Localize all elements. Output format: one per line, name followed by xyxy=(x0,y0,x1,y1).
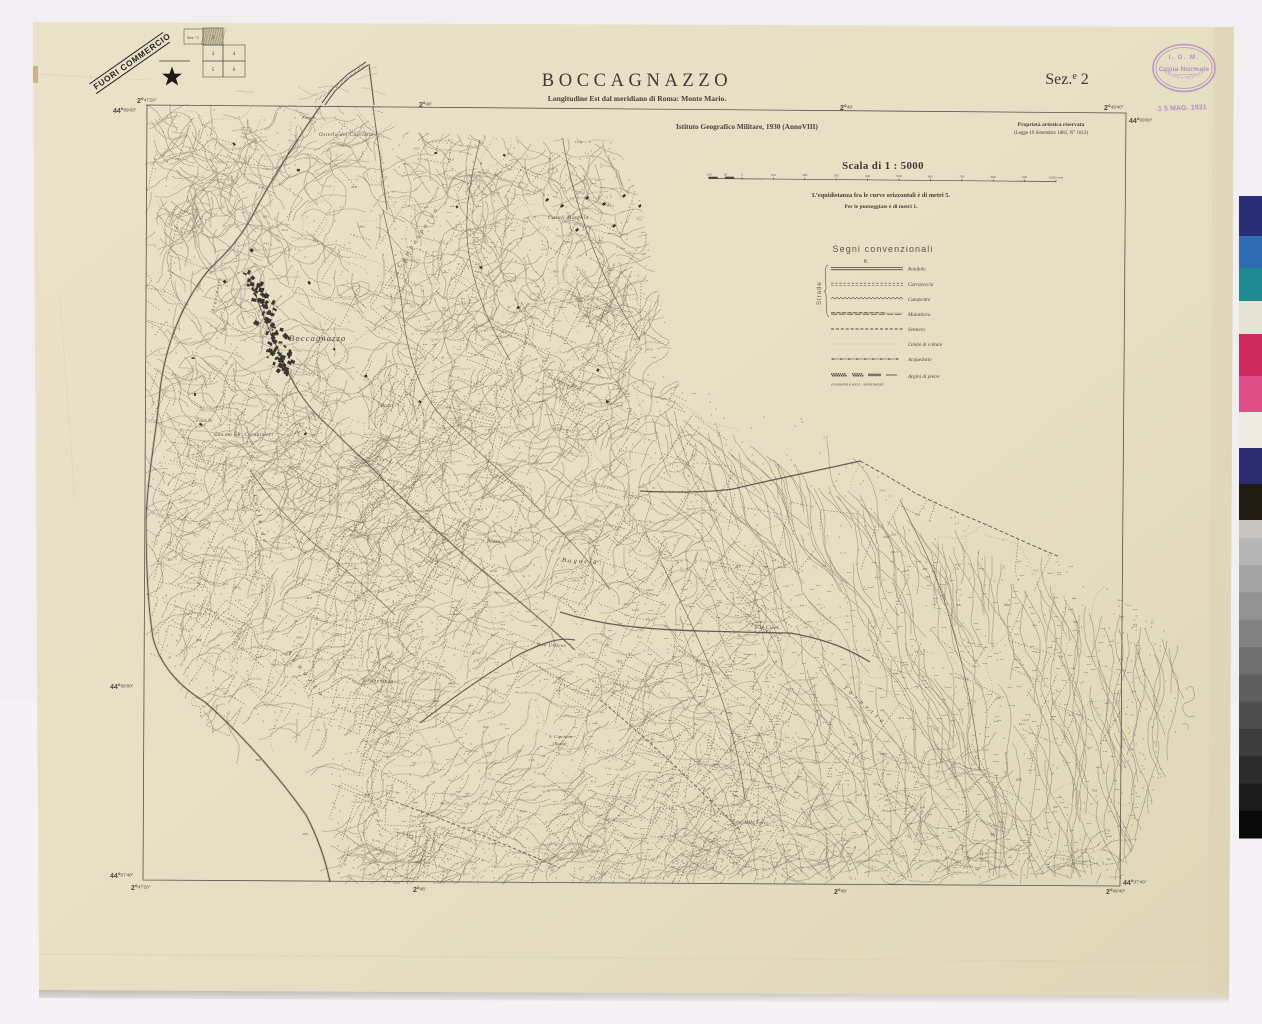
svg-text:Casali Marchio: Casali Marchio xyxy=(548,215,589,221)
svg-text:106.7: 106.7 xyxy=(891,533,899,537)
svg-text:(Legge 19 Settembre 1882, N° 1: (Legge 19 Settembre 1882, N° 1012) xyxy=(1014,131,1089,136)
svg-text:61.2: 61.2 xyxy=(1019,722,1025,726)
svg-text:46.1: 46.1 xyxy=(856,793,862,797)
svg-text:100: 100 xyxy=(771,173,776,177)
svg-text:108.4: 108.4 xyxy=(296,636,304,640)
svg-text:64.8: 64.8 xyxy=(542,358,548,362)
svg-text:58.2: 58.2 xyxy=(624,602,630,606)
svg-text:42.6: 42.6 xyxy=(638,485,644,489)
svg-text:104.1: 104.1 xyxy=(420,671,428,675)
svg-text:44.4: 44.4 xyxy=(263,241,269,245)
svg-text:38.8: 38.8 xyxy=(255,758,261,762)
svg-text:Longitudine Est dal meridiano: Longitudine Est dal meridiano di Roma: M… xyxy=(548,94,727,103)
svg-text:79.1: 79.1 xyxy=(915,513,921,517)
svg-text:65.9: 65.9 xyxy=(258,186,264,190)
svg-text:109.3: 109.3 xyxy=(551,270,559,274)
svg-text:50: 50 xyxy=(724,173,728,177)
svg-text:con muretti a secco senza mu: con muretti a secco senza muretti xyxy=(831,383,884,387)
svg-text:600: 600 xyxy=(928,174,933,178)
svg-text:Proprietà artistica riservata: Proprietà artistica riservata xyxy=(1018,122,1085,128)
svg-text:I. G. M.: I. G. M. xyxy=(1169,54,1200,61)
svg-text:86.9: 86.9 xyxy=(449,681,455,685)
svg-text:41.0: 41.0 xyxy=(590,780,596,784)
svg-text:52.5: 52.5 xyxy=(548,866,554,870)
svg-text:Osteria del Cacciatore: Osteria del Cacciatore xyxy=(319,132,378,138)
svg-text:Pozzo: Pozzo xyxy=(486,540,501,545)
svg-text:Cas.ma RR. Carabinieri: Cas.ma RR. Carabinieri xyxy=(214,432,273,438)
svg-text:40.7: 40.7 xyxy=(167,558,173,562)
svg-text:43.3: 43.3 xyxy=(898,716,904,720)
svg-text:700: 700 xyxy=(959,175,964,179)
svg-text:65.6: 65.6 xyxy=(963,677,969,681)
svg-text:81.1: 81.1 xyxy=(565,498,571,502)
svg-text:86.2: 86.2 xyxy=(441,802,447,806)
svg-text:115.0: 115.0 xyxy=(233,585,241,589)
svg-text:97.8: 97.8 xyxy=(756,620,762,624)
svg-text:94.4: 94.4 xyxy=(1004,602,1010,606)
svg-text:Sez.e 2: Sez.e 2 xyxy=(1045,71,1089,88)
svg-text:99.4: 99.4 xyxy=(980,857,986,861)
svg-text:2: 2 xyxy=(212,35,215,41)
svg-text:87.9: 87.9 xyxy=(647,348,653,352)
svg-text:71.3: 71.3 xyxy=(297,643,303,647)
svg-text:200: 200 xyxy=(802,173,807,177)
svg-text:Sez.i 1: Sez.i 1 xyxy=(187,35,200,40)
svg-text:63.6: 63.6 xyxy=(883,535,889,539)
svg-text:78.7: 78.7 xyxy=(389,588,395,592)
svg-text:47.2: 47.2 xyxy=(351,564,357,568)
svg-text:Font.le: Font.le xyxy=(301,115,317,120)
svg-text:46.7: 46.7 xyxy=(433,699,439,703)
svg-text:57.4: 57.4 xyxy=(879,489,885,493)
svg-text:55.4: 55.4 xyxy=(382,755,388,759)
svg-text:106.5: 106.5 xyxy=(890,550,898,554)
svg-text:800: 800 xyxy=(991,175,996,179)
svg-text:36.9: 36.9 xyxy=(282,228,288,232)
svg-text:(Rov.a): (Rov.a) xyxy=(553,741,567,746)
svg-text:52.5: 52.5 xyxy=(983,748,989,752)
svg-text:74.5: 74.5 xyxy=(312,240,318,244)
svg-text:38.5: 38.5 xyxy=(852,742,858,746)
svg-text:5: 5 xyxy=(212,67,215,73)
svg-text:F.te Cicer: F.te Cicer xyxy=(754,625,780,631)
svg-text:78.9: 78.9 xyxy=(520,809,526,813)
svg-text:Rotabile: Rotabile xyxy=(907,267,926,273)
svg-text:4: 4 xyxy=(233,51,236,57)
svg-text:500: 500 xyxy=(896,174,901,178)
svg-text:59.2: 59.2 xyxy=(474,650,480,654)
svg-text:64.6: 64.6 xyxy=(417,517,423,521)
svg-text:42.3: 42.3 xyxy=(465,749,471,753)
svg-text:L’equidistanza fra le curve or: L’equidistanza fra le curve orizzontali … xyxy=(812,192,950,199)
svg-text:35.9: 35.9 xyxy=(660,397,666,401)
svg-text:108.1: 108.1 xyxy=(413,860,421,864)
svg-text:79.1: 79.1 xyxy=(442,308,448,312)
svg-text:107.5: 107.5 xyxy=(334,632,342,636)
svg-text:82.5: 82.5 xyxy=(346,580,352,584)
svg-text:42.5: 42.5 xyxy=(414,146,420,150)
svg-text:Argini di pietre: Argini di pietre xyxy=(907,374,940,380)
svg-text:47.0: 47.0 xyxy=(607,748,613,752)
svg-text:46.2: 46.2 xyxy=(409,854,415,858)
svg-text:97.0: 97.0 xyxy=(500,723,506,727)
svg-text:39.3: 39.3 xyxy=(494,591,500,595)
svg-text:58.6: 58.6 xyxy=(483,725,489,729)
svg-text:78.3: 78.3 xyxy=(364,793,370,797)
svg-text:K.: K. xyxy=(864,259,869,265)
svg-text:47.7: 47.7 xyxy=(998,695,1004,699)
svg-text:110.1: 110.1 xyxy=(650,858,658,862)
svg-text:Limite di colture: Limite di colture xyxy=(907,342,943,348)
svg-text:BOCCAGNAZZO: BOCCAGNAZZO xyxy=(542,71,732,91)
svg-text:Scala di 1 : 5000: Scala di 1 : 5000 xyxy=(842,160,924,172)
svg-text:79.8: 79.8 xyxy=(1091,789,1097,793)
svg-text:112.5: 112.5 xyxy=(575,140,583,144)
svg-text:46.9: 46.9 xyxy=(571,384,577,388)
svg-text:46.8: 46.8 xyxy=(302,832,308,836)
svg-text:56.9: 56.9 xyxy=(477,508,483,512)
svg-text:109.2: 109.2 xyxy=(262,215,270,219)
svg-text:3: 3 xyxy=(212,51,215,57)
svg-text:6: 6 xyxy=(233,67,236,73)
svg-text:63.8: 63.8 xyxy=(1016,778,1022,782)
svg-text:Istituto Geografico Militare: Istituto Geografico Militare, 1930 (Anno… xyxy=(676,122,819,131)
svg-text:49.2: 49.2 xyxy=(586,834,592,838)
svg-text:Sentiero: Sentiero xyxy=(908,327,926,333)
svg-text:100: 100 xyxy=(706,172,711,176)
svg-text:.1 5 MAG. 1931: .1 5 MAG. 1931 xyxy=(1156,102,1207,113)
svg-text:98.7: 98.7 xyxy=(196,638,202,642)
svg-text:74.9: 74.9 xyxy=(375,818,381,822)
svg-text:Acquedotto: Acquedotto xyxy=(907,357,932,363)
svg-text:58.8: 58.8 xyxy=(713,763,719,767)
svg-text:51.6: 51.6 xyxy=(529,758,535,762)
svg-text:Segni convenzionali: Segni convenzionali xyxy=(833,244,934,254)
svg-text:Carrareccia: Carrareccia xyxy=(908,282,934,288)
svg-text:58.1: 58.1 xyxy=(882,808,888,812)
svg-text:106.1: 106.1 xyxy=(358,225,366,229)
svg-text:48.0: 48.0 xyxy=(351,185,357,189)
svg-text:Strade: Strade xyxy=(817,281,823,305)
svg-text:114.9: 114.9 xyxy=(632,608,640,612)
svg-text:Per le punteggiate è di metri: Per le punteggiate è di metri 1. xyxy=(844,204,918,210)
svg-text:P.so Ustivaz: P.so Ustivaz xyxy=(536,643,566,649)
svg-text:105.0: 105.0 xyxy=(490,569,498,573)
svg-text:48.1: 48.1 xyxy=(367,573,373,577)
svg-text:75.3: 75.3 xyxy=(531,454,537,458)
svg-text:43.6: 43.6 xyxy=(788,687,794,691)
svg-text:52.7: 52.7 xyxy=(522,220,528,224)
svg-text:108.2: 108.2 xyxy=(646,588,654,592)
svg-text:55.1: 55.1 xyxy=(854,713,860,717)
svg-text:100.6: 100.6 xyxy=(571,579,579,583)
svg-text:42.5: 42.5 xyxy=(735,565,741,569)
svg-text:300: 300 xyxy=(834,174,839,178)
svg-text:72.3: 72.3 xyxy=(507,152,513,156)
svg-text:41.9: 41.9 xyxy=(448,158,454,162)
svg-text:43.5: 43.5 xyxy=(407,623,413,627)
svg-text:Mulattiera: Mulattiera xyxy=(907,312,931,318)
svg-text:43.7: 43.7 xyxy=(691,454,697,458)
svg-text:47.6: 47.6 xyxy=(294,431,300,435)
svg-text:95.5: 95.5 xyxy=(381,621,387,625)
svg-text:Font.le: Font.le xyxy=(195,419,213,424)
svg-text:54.5: 54.5 xyxy=(410,304,416,308)
svg-text:78.7: 78.7 xyxy=(222,328,228,332)
svg-text:111.6: 111.6 xyxy=(578,653,585,657)
svg-text:53.2: 53.2 xyxy=(403,162,409,166)
svg-text:90.1: 90.1 xyxy=(873,782,879,786)
svg-text:48.4: 48.4 xyxy=(621,322,627,326)
svg-text:100.2: 100.2 xyxy=(577,190,585,194)
svg-text:101.6: 101.6 xyxy=(688,696,696,700)
svg-text:Boccagnazzo: Boccagnazzo xyxy=(289,333,346,343)
svg-text:90.6: 90.6 xyxy=(885,798,891,802)
svg-text:1000 metri: 1000 metri xyxy=(1049,175,1064,179)
svg-text:59.6: 59.6 xyxy=(624,392,630,396)
svg-text:Strabenissa: Strabenissa xyxy=(362,678,394,685)
svg-text:400: 400 xyxy=(865,174,870,178)
svg-text:111.7: 111.7 xyxy=(850,675,857,679)
svg-text:88.9: 88.9 xyxy=(562,812,568,816)
svg-text:57.7: 57.7 xyxy=(538,772,544,776)
svg-text:107.9: 107.9 xyxy=(621,233,629,237)
svg-text:Campestre: Campestre xyxy=(908,297,931,303)
svg-text:45.4: 45.4 xyxy=(222,582,228,586)
svg-text:36.0: 36.0 xyxy=(951,762,957,766)
svg-text:39.9: 39.9 xyxy=(616,659,622,663)
svg-text:S. Cipriano: S. Cipriano xyxy=(549,734,573,739)
svg-text:900: 900 xyxy=(1022,175,1027,179)
svg-text:Pozzi: Pozzi xyxy=(380,404,394,409)
svg-text:111.8: 111.8 xyxy=(305,596,312,600)
svg-text:66.9: 66.9 xyxy=(298,421,304,425)
svg-text:102.9: 102.9 xyxy=(880,752,888,756)
